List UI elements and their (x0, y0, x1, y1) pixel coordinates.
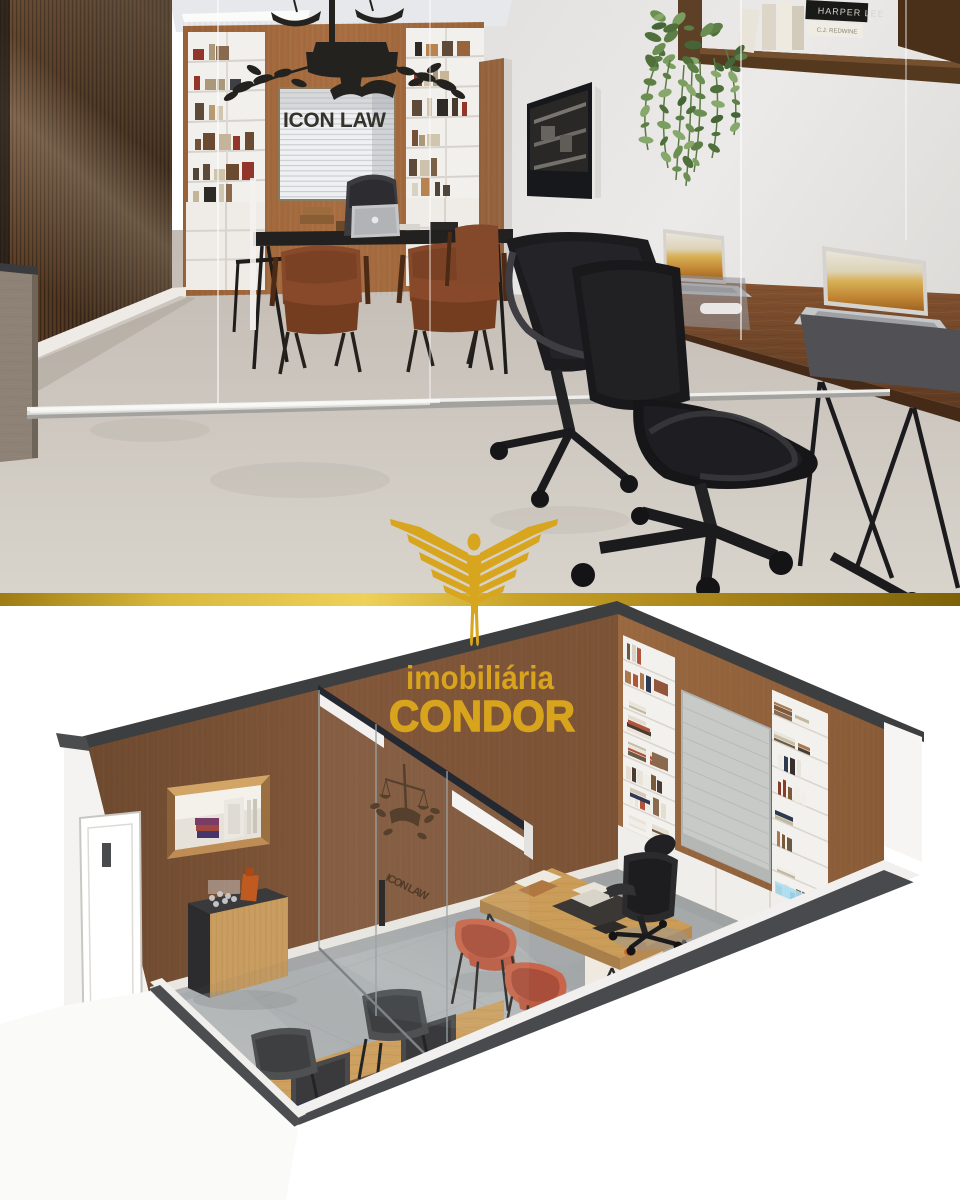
svg-text:CONDOR: CONDOR (389, 692, 575, 741)
svg-text:imobiliária: imobiliária (406, 659, 555, 696)
svg-text:ICON LAW: ICON LAW (283, 109, 387, 132)
